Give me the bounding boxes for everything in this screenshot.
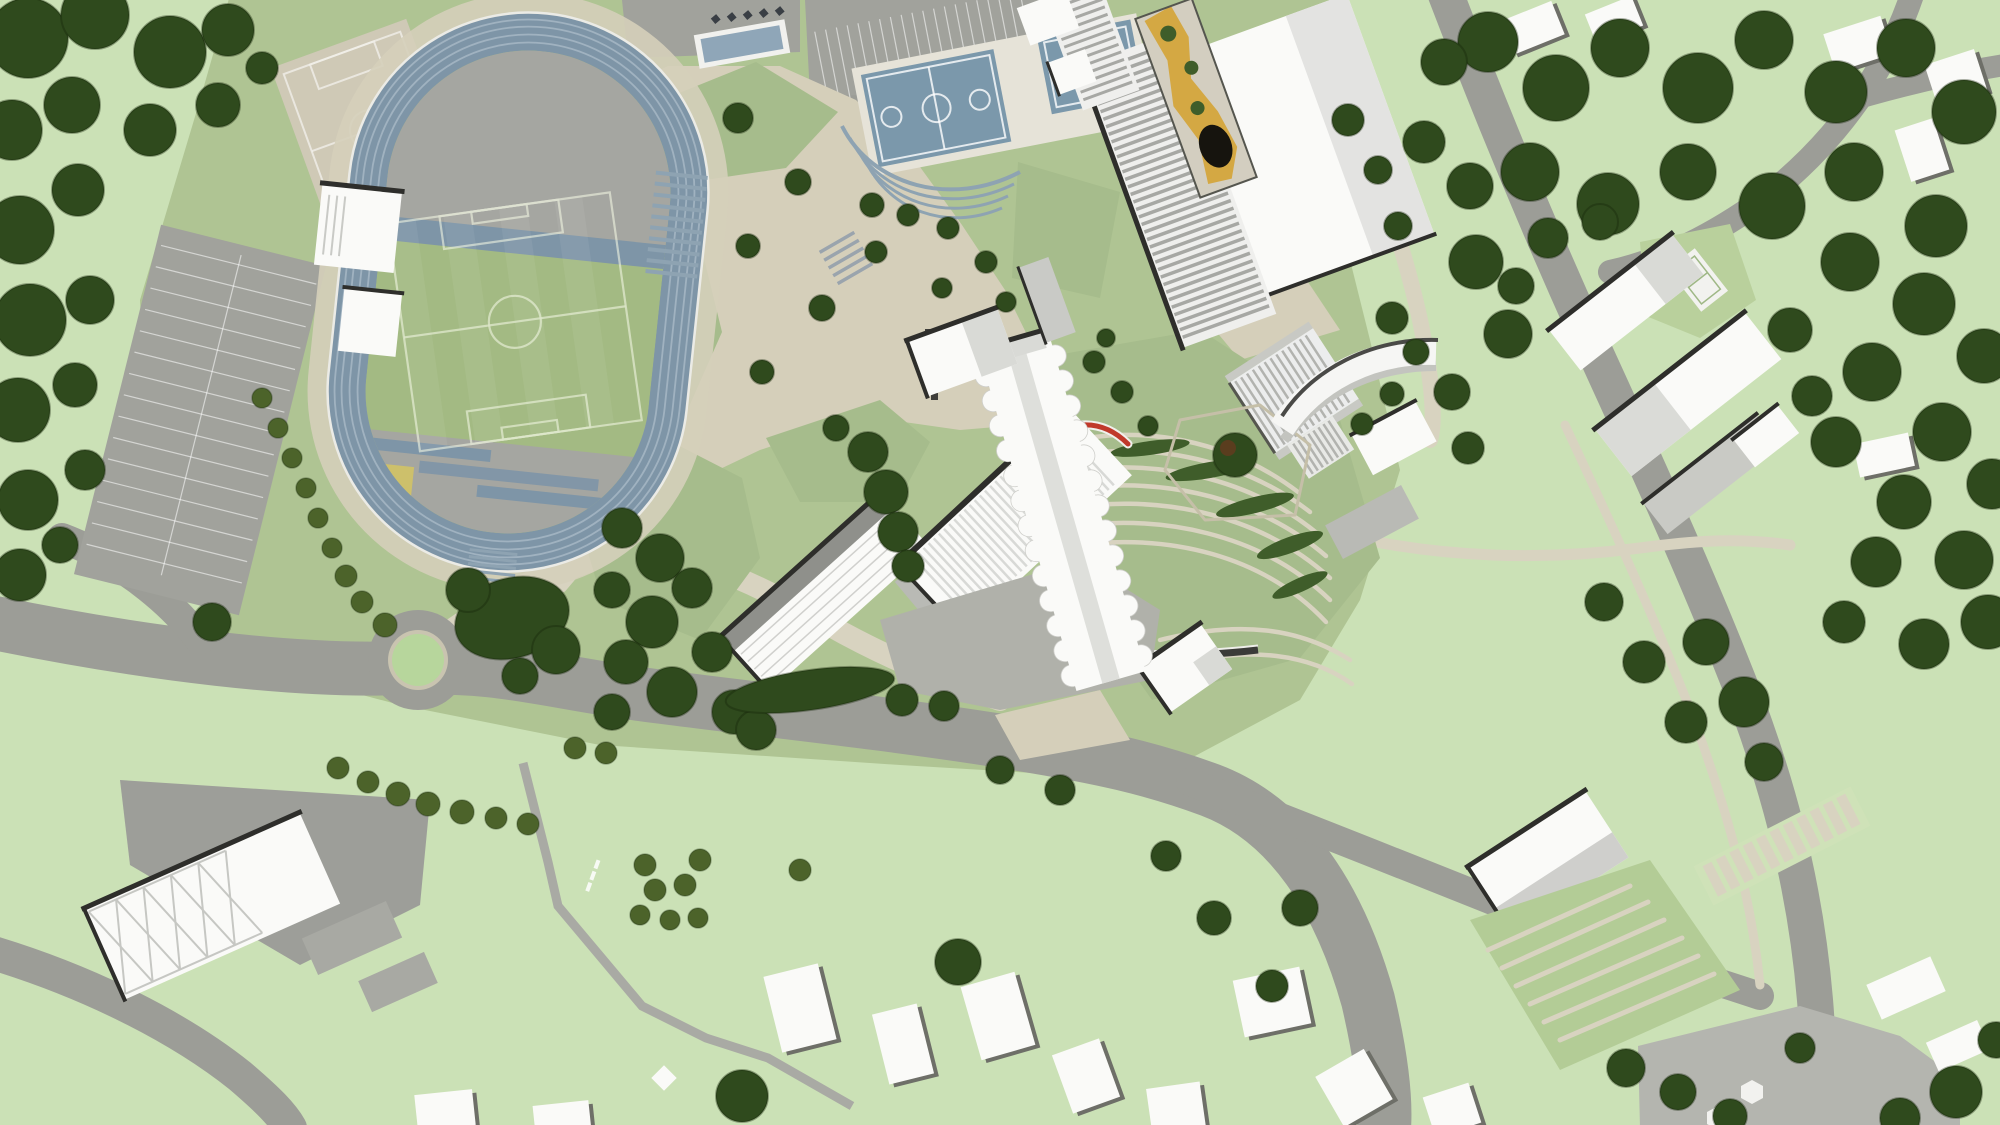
site-plan-svg: Campus site plan — aerial architectural … [0,0,2000,1125]
plaza-tree [1213,433,1257,477]
site-plan-map: Campus site plan — aerial architectural … [0,0,2000,1125]
